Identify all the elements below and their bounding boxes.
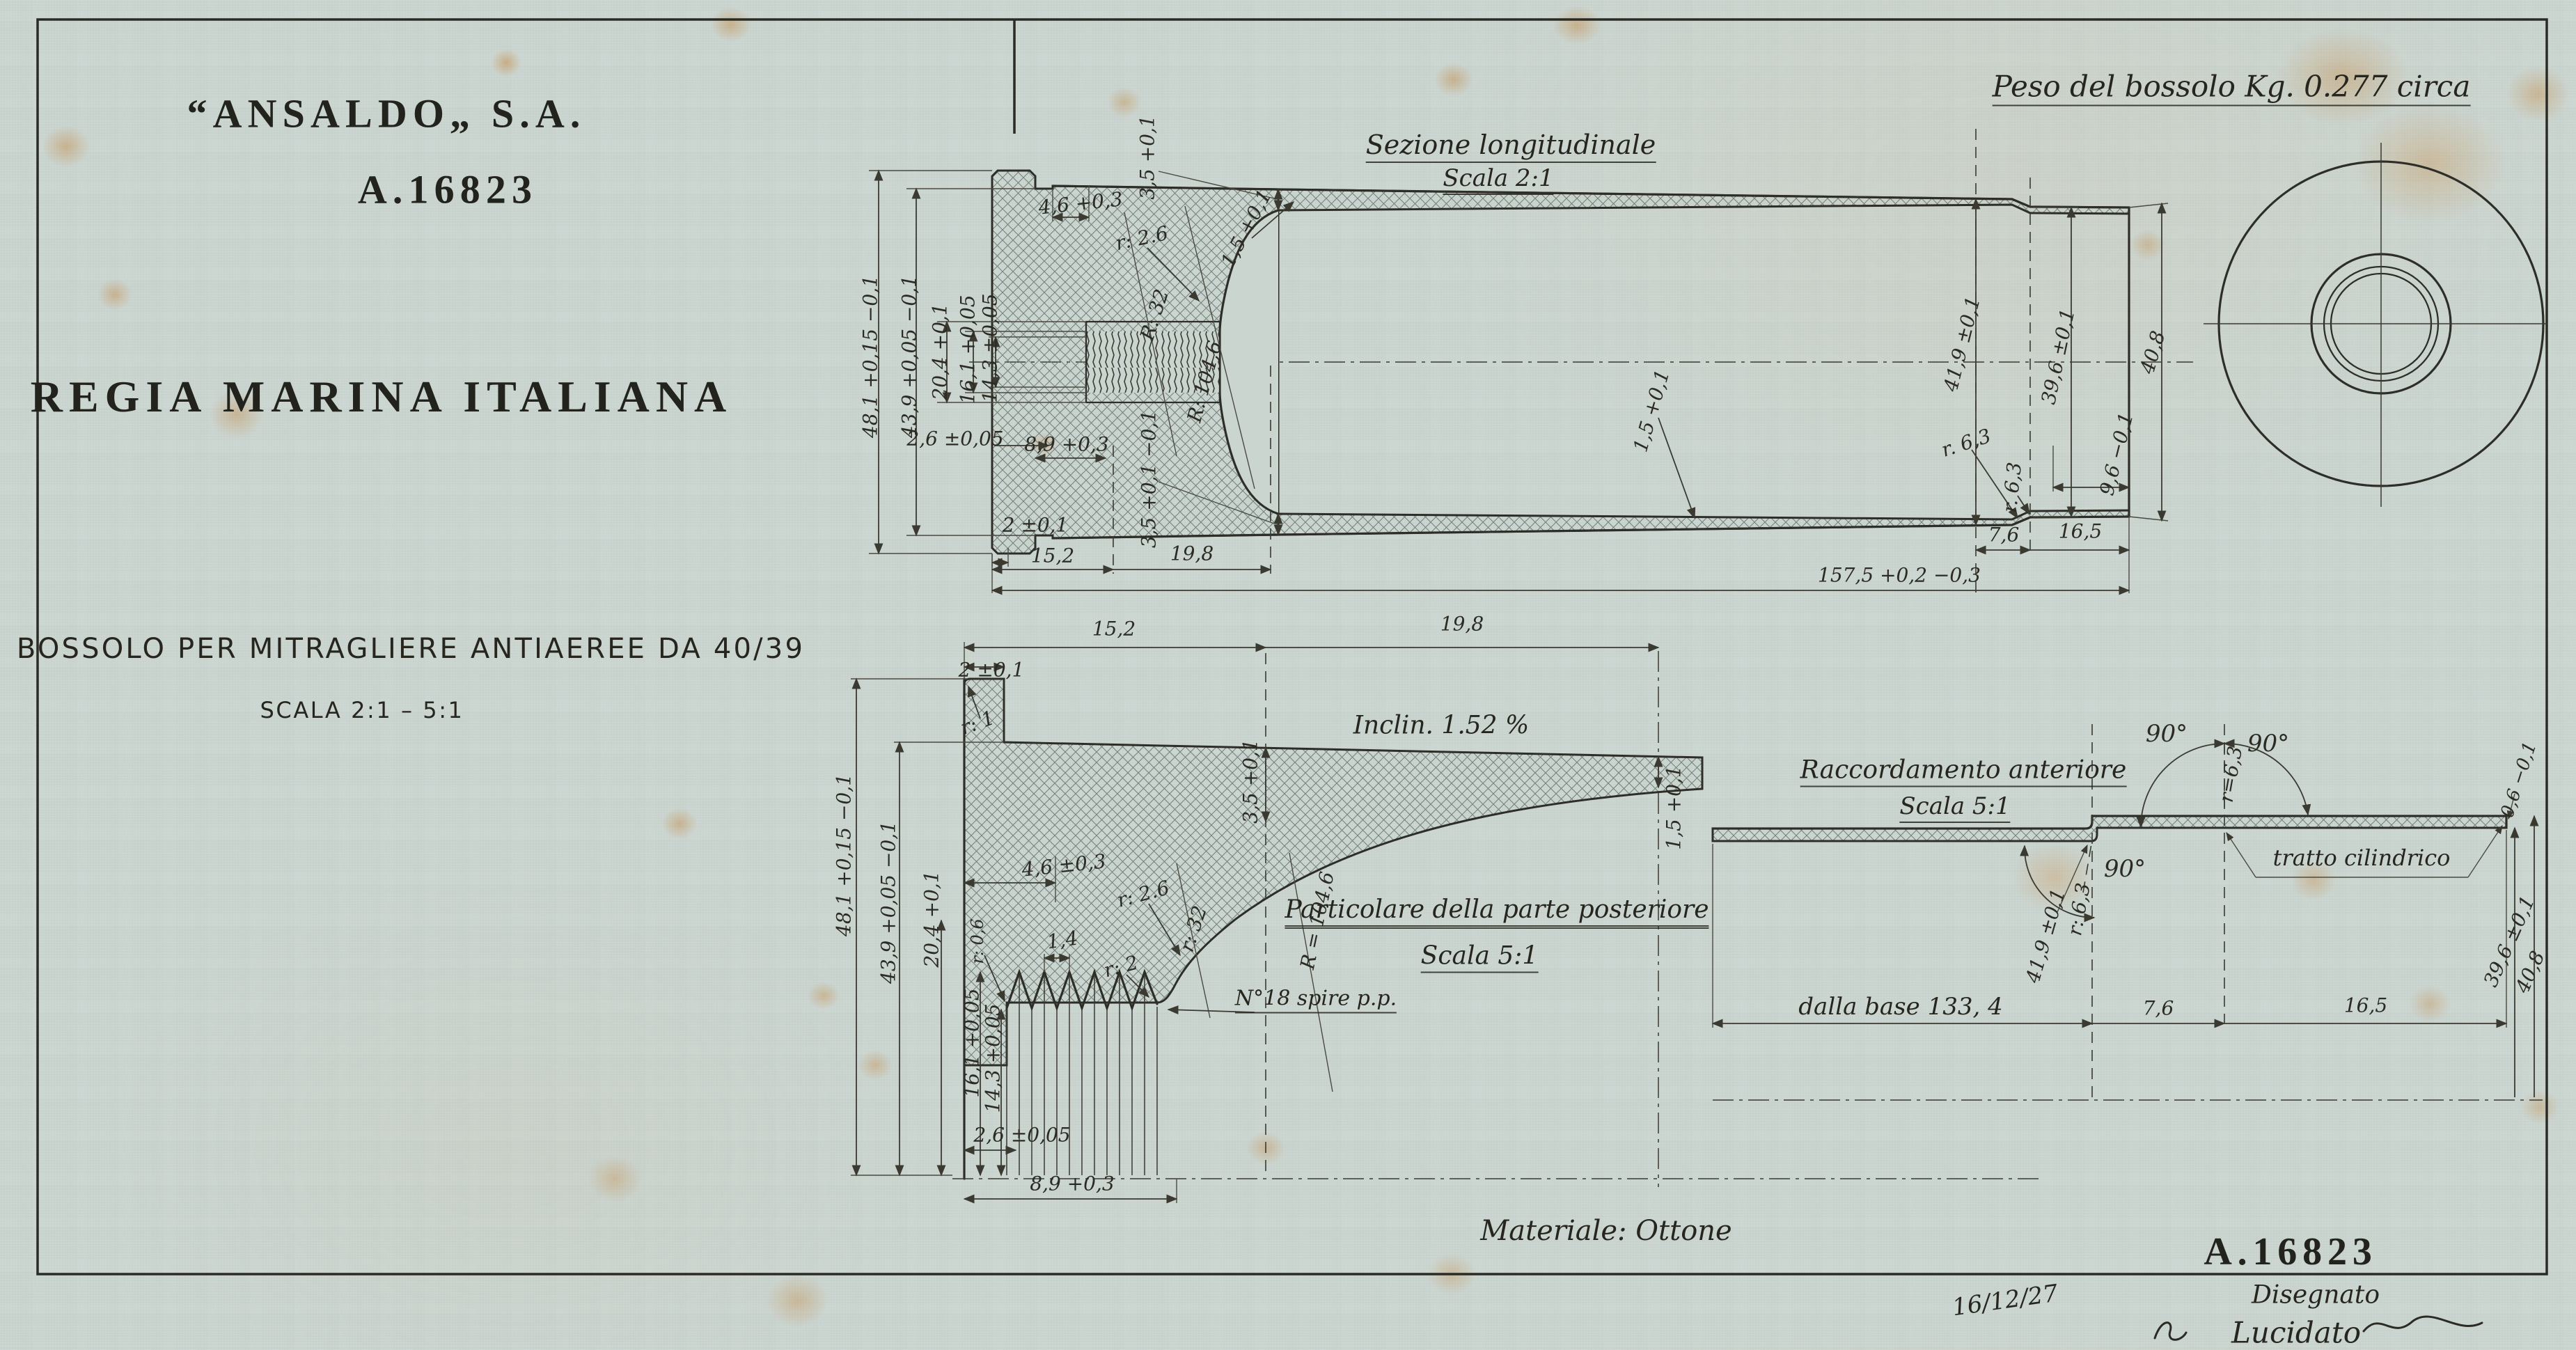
dim-43-9: 43,9 +0,05 −0,1	[877, 821, 900, 984]
dim-43-9: 43,9 +0,05 −0,1	[898, 275, 921, 438]
view-title-front-fillet: Raccordamento anteriore	[1800, 756, 2127, 787]
drawing-title: BOSSOLO PER MITRAGLIERE ANTIAEREE DA 40/…	[17, 633, 805, 665]
dim-14-3: 14,3 +0,05	[982, 1003, 1005, 1113]
dim-19-8: 19,8	[1440, 613, 1484, 636]
organization: REGIA MARINA ITALIANA	[31, 371, 732, 423]
dim-15-2: 15,2	[1031, 544, 1074, 567]
dim-1-5: 1,5 +0,1	[1663, 765, 1686, 849]
dim-2: 2 ±0,1	[959, 659, 1025, 682]
inclination-note: Inclin. 1.52 %	[1353, 712, 1529, 740]
dim-20-4: 20,4 +0,1	[920, 870, 943, 967]
view-title-rear-detail: Particolare della parte posteriore	[1285, 895, 1709, 929]
dim-7-6: 7,6	[1988, 524, 2020, 547]
dim-16-1: 16,1 +0,05	[957, 295, 980, 404]
dim-48-1: 48,1 +0,15 −0,1	[833, 774, 856, 936]
angle-90-c: 90°	[2104, 855, 2146, 883]
dim-15-2: 15,2	[1092, 618, 1136, 641]
dim-20-4: 20,4 +0,1	[929, 303, 952, 400]
footer-traced-label: Lucidato	[2231, 1316, 2361, 1350]
weight-note: Peso del bossolo Kg. 0.277 circa	[1993, 70, 2471, 107]
view-title-longitudinal: Sezione longitudinale	[1366, 129, 1656, 163]
dim-2-6: 2,6 ±0,05	[973, 1124, 1070, 1147]
angle-90-b: 90°	[2247, 730, 2289, 758]
company-name: “ANSALDO„ S.A.	[187, 91, 586, 137]
drawing-number: A.16823	[358, 166, 537, 213]
blueprint-sheet: “ANSALDO„ S.A.A.16823REGIA MARINA ITALIA…	[0, 0, 2576, 1346]
dim-7-6: 7,6	[2143, 997, 2174, 1020]
view-scale-rear-detail: Scala 5:1	[1421, 942, 1539, 973]
radius-0-6: r: 0,6	[968, 918, 987, 964]
dim-3-5: 3,5 +0,1	[1239, 739, 1262, 823]
angle-90-a: 90°	[2146, 720, 2188, 748]
dim-1-4: 1,4	[1046, 927, 1080, 954]
drawing-scale: SCALA 2:1 – 5:1	[260, 697, 464, 723]
footer-number: A.16823	[2204, 1230, 2377, 1274]
view-scale-front-fillet: Scala 5:1	[1899, 792, 2010, 823]
dim-8-9: 8,9 +0,3	[1030, 1172, 1114, 1195]
dim-8-9: 8,9 +0,3	[1024, 433, 1108, 456]
base-distance-note: dalla base 133, 4	[1798, 993, 2002, 1021]
end-view-drawing	[2204, 143, 2547, 507]
cylindrical-note: tratto cilindrico	[2273, 845, 2451, 871]
dim-3-5-bottom: 3,5 +0,1 −0,1	[1138, 410, 1161, 548]
view-scale-longitudinal: Scala 2:1	[1443, 164, 1553, 195]
dim-2: 2 ±0,1	[1003, 514, 1069, 537]
dim-2-6: 2,6 ±0,05	[906, 427, 1003, 450]
dim-14-3: 14,3 ±0,05	[979, 293, 1002, 402]
dim-3-5-top: 3,5 +0,1	[1136, 115, 1159, 199]
dim-157-5: 157,5 +0,2 −0,3	[1818, 564, 1981, 587]
dim-16-5: 16,5	[2344, 994, 2387, 1017]
dim-16-5: 16,5	[2059, 520, 2102, 543]
dim-19-8: 19,8	[1170, 542, 1214, 565]
dim-16-1: 16,1 +0,05	[961, 988, 984, 1097]
material-note: Materiale: Ottone	[1480, 1215, 1731, 1247]
thread-note: N°18 spire p.p.	[1235, 987, 1397, 1014]
dim-48-1: 48,1 +0,15 −0,1	[859, 275, 882, 438]
footer-drawn-label: Disegnato	[2252, 1281, 2380, 1310]
